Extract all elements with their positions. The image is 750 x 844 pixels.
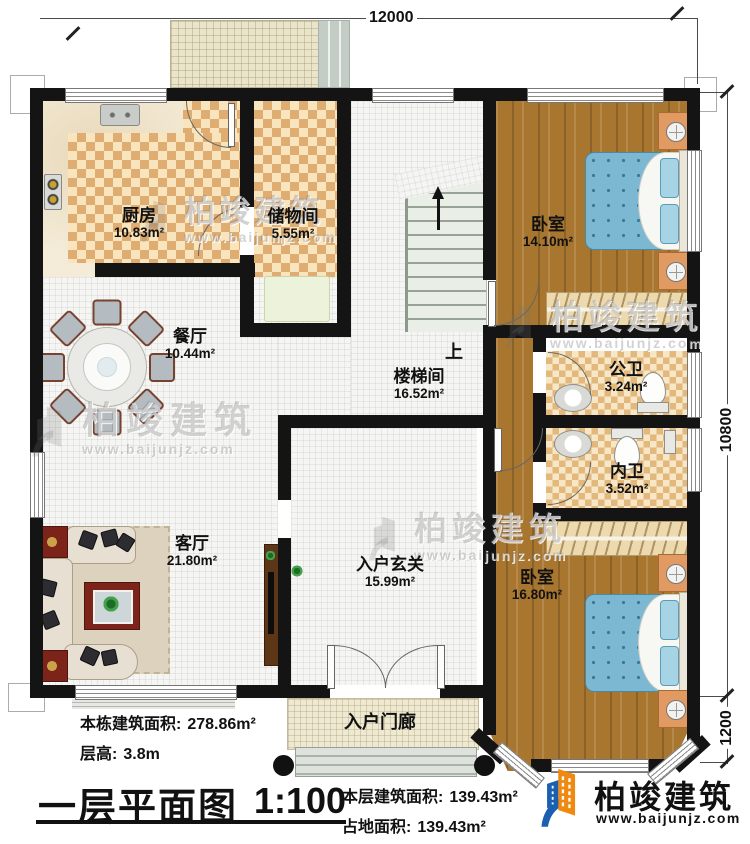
wall	[95, 263, 255, 277]
brand-url: www.baijunjz.com	[596, 810, 741, 826]
tv-screen	[268, 572, 274, 634]
bedroom-bottom-closet	[546, 521, 689, 556]
window	[75, 685, 237, 700]
dim-right-bay-value: 1200	[718, 707, 736, 749]
stair-arrow-stem	[437, 198, 440, 230]
kitchen-sink	[100, 104, 140, 126]
bedroom-top-label: 卧室14.10m²	[523, 215, 573, 249]
wall	[30, 88, 43, 698]
wall	[533, 415, 700, 428]
stair-up-label: 上	[445, 338, 463, 364]
title-underline	[36, 820, 346, 824]
wall	[533, 338, 546, 352]
window	[527, 88, 664, 103]
porch-column	[474, 755, 495, 776]
floor-height-value: 3.8m	[123, 746, 159, 763]
entry-door-leaf-right	[437, 645, 445, 689]
footprint-value: 139.43m²	[417, 819, 486, 836]
floor-height-label: 层高:	[80, 746, 117, 763]
brand-logo-icon	[534, 762, 590, 830]
bedroom-bottom-label: 卧室16.80m²	[512, 568, 562, 602]
building-area-line: 本栋建筑面积:278.86m²	[80, 710, 262, 734]
dim-extension	[697, 18, 698, 84]
wall	[278, 415, 291, 500]
bath-inner-label: 内卫3.52m²	[606, 462, 649, 496]
kitchen-label: 厨房10.83m²	[114, 206, 164, 240]
floor-area-value: 139.43m²	[449, 789, 518, 806]
wall	[254, 323, 351, 337]
wall	[240, 101, 254, 207]
storage-mat	[264, 276, 330, 322]
dining-chair	[93, 300, 122, 326]
bath-inner-sink	[554, 430, 592, 458]
wall	[483, 88, 496, 280]
footprint-label: 占地面积:	[342, 819, 411, 836]
stove	[44, 174, 62, 210]
stairwell-label: 楼梯间16.52m²	[394, 367, 445, 401]
wall	[483, 325, 496, 735]
wall	[533, 508, 700, 521]
wall	[240, 255, 254, 337]
porch-label: 入户门廊	[344, 712, 416, 733]
wall	[483, 325, 700, 338]
footprint-line: 占地面积:139.43m²	[342, 813, 492, 837]
floor-area-label: 本层建筑面积:	[342, 789, 443, 806]
rear-terrace	[170, 20, 320, 88]
window	[30, 452, 45, 518]
rear-terrace-step	[318, 20, 350, 88]
floor-height-line: 层高:3.8m	[80, 740, 166, 764]
storage-label: 储物间5.55m²	[268, 207, 319, 241]
floor-area-line: 本层建筑面积:139.43m²	[342, 783, 524, 807]
window	[687, 428, 702, 492]
staircase	[405, 180, 487, 332]
drawing-scale: 1:100	[254, 780, 346, 822]
bed-pillow	[660, 158, 679, 198]
dim-right-main-value: 10800	[718, 405, 736, 456]
bath-public-toilet-tank	[637, 402, 669, 413]
wall	[278, 538, 291, 685]
dim-tick	[66, 26, 81, 41]
entry-steps	[295, 747, 477, 777]
hall-door-arc	[500, 428, 543, 471]
wall	[337, 101, 351, 337]
building-area-label: 本栋建筑面积:	[80, 716, 181, 733]
dining-chair	[93, 410, 122, 436]
foyer-label: 入户玄关15.99m²	[356, 555, 424, 589]
dim-top-value: 12000	[366, 9, 417, 27]
foyer-plant	[291, 564, 303, 578]
living-label: 客厅21.80m²	[167, 534, 217, 568]
bedroom-top-closet	[546, 292, 689, 327]
window	[687, 150, 702, 252]
coffee-table-plant	[102, 595, 120, 613]
tv-plant	[265, 550, 276, 561]
sofa-pillow	[101, 649, 119, 667]
bed-pillow	[660, 600, 679, 640]
porch-column	[273, 755, 294, 776]
building-area-value: 278.86m²	[187, 716, 256, 733]
dining-table-center	[97, 357, 117, 377]
window-sill	[72, 699, 235, 709]
bath-public-label: 公卫3.24m²	[605, 360, 648, 394]
dining-label: 餐厅10.44m²	[165, 327, 215, 361]
window	[65, 88, 167, 103]
window	[372, 88, 454, 103]
bath-inner-shower	[664, 430, 676, 454]
wall	[290, 415, 483, 428]
window	[687, 352, 702, 418]
bed-pillow	[660, 646, 679, 686]
floor-plan-page: 厨房10.83m² 储物间5.55m² 卧室14.10m² 餐厅10.44m² …	[0, 0, 750, 844]
bed-pillow	[660, 204, 679, 244]
sofa-bottom	[64, 644, 138, 680]
